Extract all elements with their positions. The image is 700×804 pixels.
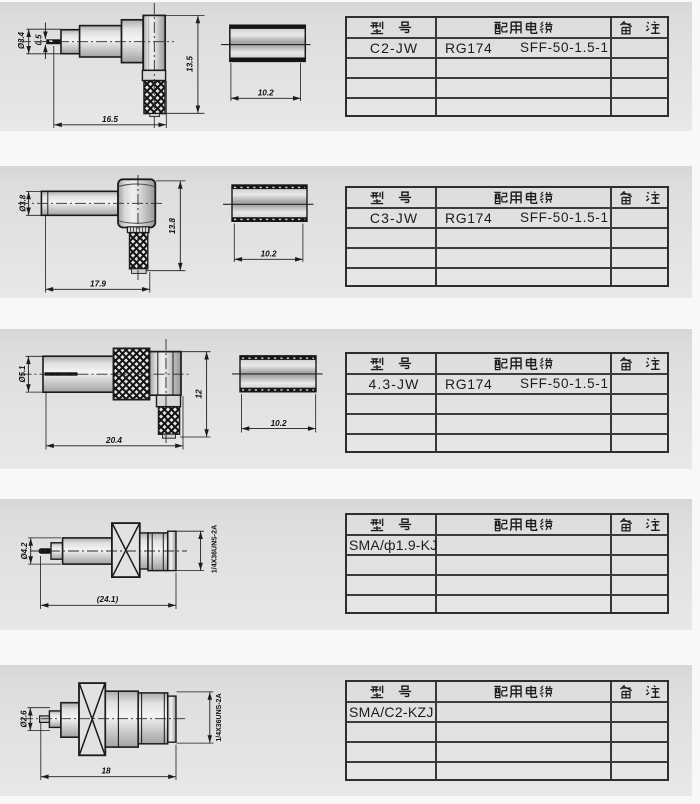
svg-text:1/4X36UNS-2A: 1/4X36UNS-2A — [211, 525, 218, 573]
svg-text:0.5: 0.5 — [35, 34, 44, 46]
svg-text:18: 18 — [101, 767, 111, 776]
svg-text:(24.1): (24.1) — [97, 595, 119, 604]
svg-text:13.5: 13.5 — [185, 56, 194, 72]
svg-text:10.2: 10.2 — [258, 89, 274, 98]
svg-text:10.2: 10.2 — [261, 250, 277, 259]
svg-text:1/4X36UNS-2A: 1/4X36UNS-2A — [216, 693, 223, 741]
svg-text:20.4: 20.4 — [105, 436, 122, 445]
svg-text:16.5: 16.5 — [102, 115, 118, 124]
svg-text:17.9: 17.9 — [90, 280, 106, 289]
svg-text:12: 12 — [194, 389, 203, 399]
svg-text:13.8: 13.8 — [168, 218, 177, 234]
svg-text:Ø4.2: Ø4.2 — [20, 542, 29, 560]
svg-text:Ø3.4: Ø3.4 — [17, 31, 26, 49]
svg-text:10.2: 10.2 — [271, 419, 287, 428]
